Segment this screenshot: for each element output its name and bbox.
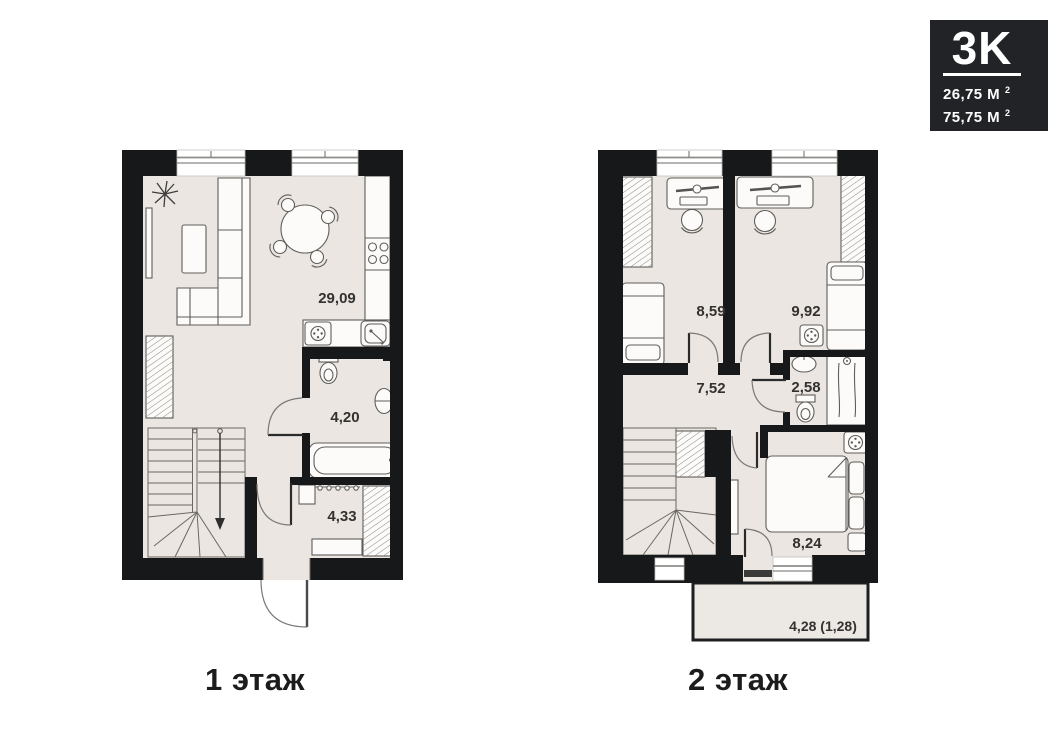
hallway-cabinet: [312, 539, 362, 555]
toilet-icon: [796, 395, 815, 422]
floor-plan-2: 8,59 9,92 7,52 2,58 8,24 4,28 (1,28): [598, 150, 878, 640]
coffee-table: [182, 225, 206, 273]
bed-single: [827, 262, 867, 350]
kitchen-sink-icon: [361, 321, 390, 346]
entrance-porch: [263, 558, 310, 580]
apartment-type-label: 3K: [943, 24, 1021, 72]
room-area-label: 7,52: [696, 380, 725, 397]
living-area-value: 26,75 М2: [943, 81, 1048, 104]
window: [292, 150, 358, 176]
room-area-label: 8,59: [696, 303, 725, 320]
window: [177, 150, 245, 176]
shower: [827, 355, 867, 425]
window: [772, 150, 837, 176]
bathtub: [309, 443, 401, 478]
window: [655, 558, 684, 580]
total-area-value: 75,75 М2: [943, 104, 1048, 127]
bed-single: [622, 283, 664, 365]
total-area-sup: 2: [1005, 108, 1010, 118]
room-area-label: 8,24: [792, 535, 822, 552]
desk: [667, 178, 728, 209]
apartment-type-badge: 3K 26,75 М2 75,75 М2: [930, 20, 1048, 131]
floorplan-page: 29,09 4,20 4,33: [0, 0, 1051, 751]
floorplans-drawing: 29,09 4,20 4,33: [0, 0, 1051, 751]
living-area-text: 26,75 М: [943, 86, 1000, 103]
living-room-wardrobe: [146, 336, 173, 418]
floor-2-caption: 2 этаж: [628, 662, 848, 698]
room-area-label: 2,58: [791, 379, 820, 396]
total-area-text: 75,75 М: [943, 109, 1000, 126]
open-door-leaf: [730, 480, 738, 534]
nightstand: [848, 533, 866, 551]
balcony-area-label: 4,28 (1,28): [789, 618, 857, 634]
kitchen-lower-counter: [303, 320, 390, 347]
tv-unit: [146, 208, 152, 278]
living-area-sup: 2: [1005, 85, 1010, 95]
window: [657, 150, 722, 176]
floor1-interior: [143, 170, 390, 558]
washer-icon: [800, 325, 823, 346]
floor-1-caption: 1 этаж: [145, 662, 365, 698]
door-threshold: [744, 570, 772, 577]
room-area-label: 4,20: [330, 409, 359, 426]
floor-plan-1: 29,09 4,20 4,33: [122, 150, 403, 627]
bedroom2-wardrobe: [841, 175, 866, 262]
stair-closet: [676, 431, 705, 477]
washer-icon: [844, 432, 867, 453]
bedroom1-wardrobe: [622, 177, 652, 267]
hallway-wardrobe: [363, 486, 391, 556]
desk: [737, 177, 813, 208]
room-area-label: 4,33: [327, 508, 356, 525]
room-area-label: 29,09: [318, 290, 356, 307]
kitchen-counter: [365, 176, 390, 320]
washer-icon: [305, 322, 331, 345]
shoe-bench: [299, 485, 315, 504]
room-area-label: 9,92: [791, 303, 820, 320]
toilet-icon: [319, 355, 338, 384]
